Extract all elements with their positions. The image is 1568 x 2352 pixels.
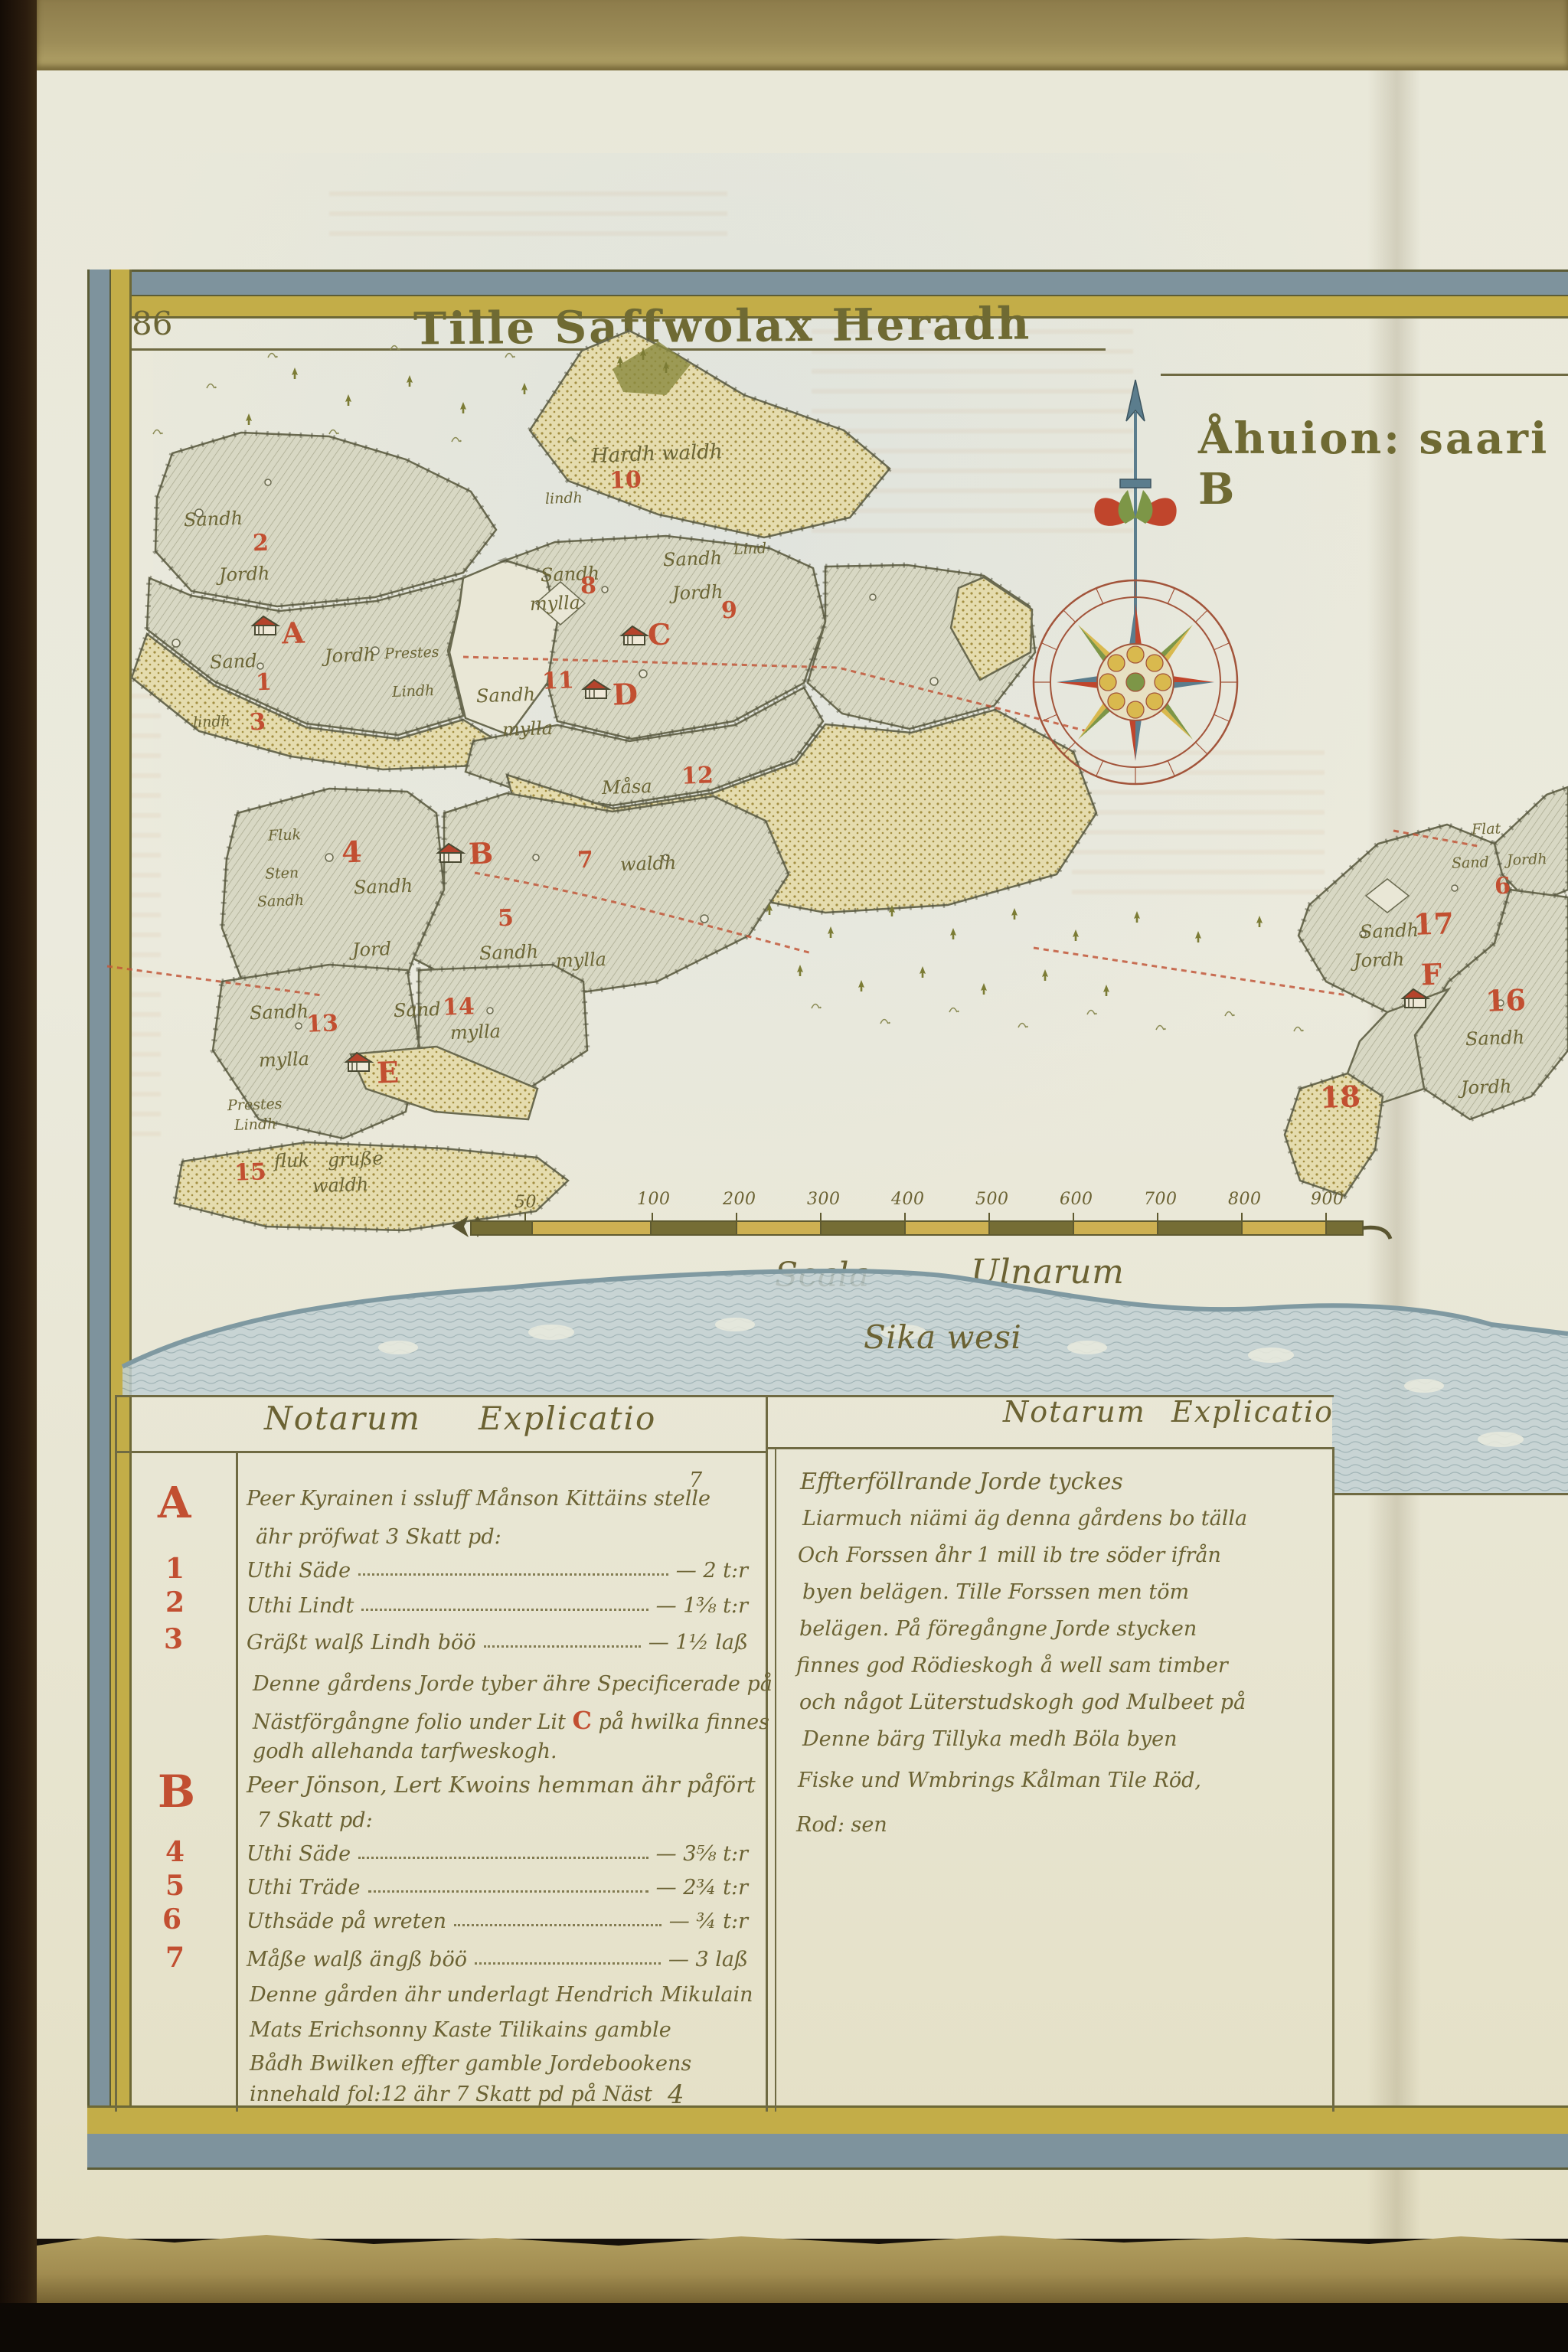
row-value: — 2¾ bbox=[656, 1876, 717, 1900]
book-gutter-shadow bbox=[0, 0, 37, 2352]
row-number: 5 bbox=[165, 1870, 185, 1902]
table-top-rule bbox=[115, 1395, 1334, 1397]
section-b-note-1: Denne gården ähr underlagt Hendrich Miku… bbox=[250, 1983, 753, 2007]
dotted-leader bbox=[358, 1573, 668, 1576]
parcel-label: Jord bbox=[352, 938, 392, 961]
row-number: 3 bbox=[164, 1623, 183, 1655]
map-frame-top-blue bbox=[87, 269, 1568, 296]
table-left-border bbox=[115, 1395, 117, 2112]
scale-tick-label: 100 bbox=[637, 1190, 671, 1209]
parcel-letter: E bbox=[376, 1055, 400, 1090]
map-canvas: .par{stroke:#6a6a50;stroke-width:2.5;} .… bbox=[77, 322, 1568, 1263]
right-col-line: Denne bärg Tillyka medh Böla byen bbox=[802, 1727, 1177, 1751]
parcel-label: Sandh bbox=[257, 892, 305, 910]
section-b-note-3: Bådh Bwilken effter gamble Jordebookens bbox=[250, 2052, 691, 2076]
table-row: Uthi Träde — 2¾ t:r bbox=[247, 1876, 748, 1900]
compass-rose bbox=[1018, 366, 1256, 795]
section-a-line-2: ähr pröfwat 3 Skatt pd: bbox=[256, 1525, 501, 1549]
table-row: Uthi Säde — 2 t:r bbox=[247, 1559, 748, 1583]
parcel-label: waldh bbox=[312, 1174, 369, 1197]
parcel-label: Sandh bbox=[1360, 920, 1419, 943]
row-unit: t:r bbox=[723, 1909, 748, 1933]
row-label: Uthi Säde bbox=[247, 1559, 351, 1583]
row-value: — ¾ bbox=[669, 1909, 717, 1933]
row-label: Uthi Träde bbox=[247, 1876, 361, 1900]
parcel-number: 13 bbox=[305, 1010, 338, 1037]
table-row: Uthi Säde — 3⅝ t:r bbox=[247, 1842, 748, 1866]
row-number: 7 bbox=[165, 1942, 185, 1974]
parcel-label: lindh bbox=[193, 713, 231, 731]
section-b-line-1: Peer Jönson, Lert Kwoins hemman ähr påfö… bbox=[247, 1772, 756, 1798]
parcel-label: Sandh bbox=[479, 941, 539, 965]
right-col-line: belägen. På föregångne Jorde stycken bbox=[799, 1617, 1197, 1641]
table-row: Måße walß ängß böö — 3 laß bbox=[247, 1948, 748, 1971]
section-a-note-1: Denne gårdens Jorde tyber ähre Specifice… bbox=[253, 1672, 773, 1696]
right-col-line: Fiske und Wmbrings Kålman Tile Röd, bbox=[798, 1769, 1201, 1792]
scale-tick-label: 600 bbox=[1060, 1190, 1093, 1209]
parcel-number: 9 bbox=[720, 597, 737, 625]
scale-tick-label: 500 bbox=[975, 1190, 1009, 1209]
row-unit: laß bbox=[715, 1948, 748, 1971]
right-col-line: finnes god Rödieskogh å well sam timber bbox=[796, 1654, 1228, 1677]
table-left-header-rule bbox=[115, 1451, 767, 1453]
parcel-label: Hardh waldh bbox=[591, 440, 724, 468]
parcel-label: waldh bbox=[620, 852, 677, 876]
right-col-line: Och Forssen åhr 1 mill ib tre söder ifrå… bbox=[798, 1543, 1221, 1567]
row-unit: t:r bbox=[723, 1559, 748, 1583]
right-col-line: Effterföllrande Jorde tyckes bbox=[800, 1468, 1123, 1495]
parcel-number: 17 bbox=[1413, 906, 1454, 942]
row-label: Måße walß ängß böö bbox=[247, 1948, 467, 1971]
row-number: 4 bbox=[165, 1836, 185, 1868]
section-a-line-1: Peer Kyrainen i ssluff Månson Kittäins s… bbox=[247, 1487, 710, 1511]
row-unit: t:r bbox=[723, 1842, 748, 1866]
map-frame-bottom-blue bbox=[87, 2134, 1568, 2170]
ink-bleedthrough bbox=[329, 191, 727, 245]
section-b-line-2: 7 Skatt pd: bbox=[257, 1808, 373, 1832]
parcel-number: 12 bbox=[681, 762, 714, 789]
table-header-right-notarum: Notarum bbox=[1003, 1395, 1146, 1429]
parcel-label: Sandh bbox=[476, 684, 536, 707]
row-label: Uthi Lindt bbox=[247, 1594, 354, 1618]
row-unit: laß bbox=[715, 1631, 748, 1655]
dotted-leader bbox=[484, 1645, 641, 1648]
parcel-label: mylla bbox=[450, 1021, 501, 1044]
parcel-label: Sandh bbox=[184, 508, 243, 531]
section-a-note-3: godh allehanda tarfweskogh. bbox=[253, 1739, 557, 1763]
scale-tick-label: 400 bbox=[891, 1190, 925, 1209]
dotted-leader bbox=[361, 1609, 648, 1611]
parcel-label: Jordh bbox=[1354, 949, 1405, 972]
section-a-note-2: Nästförgångne folio under Lit C på hwilk… bbox=[253, 1706, 769, 1735]
table-surface-bottom bbox=[0, 2303, 1568, 2352]
table-row: Uthi Lindt — 1⅜ t:r bbox=[247, 1594, 748, 1618]
lake-sika-wesi bbox=[77, 1240, 1568, 1504]
parcel-number: 11 bbox=[541, 667, 574, 694]
table-header-left-explicatio: Explicatio bbox=[479, 1400, 656, 1437]
parcel-label: Sandh bbox=[1465, 1027, 1525, 1050]
table-header-right-explicatio: Explicatio bbox=[1171, 1395, 1334, 1429]
table-right-border bbox=[1332, 1447, 1334, 2112]
row-value: — 1½ bbox=[648, 1631, 709, 1655]
table-right-header-rule bbox=[767, 1447, 1334, 1449]
parcel-label: fluk bbox=[274, 1149, 310, 1172]
table-center-divider bbox=[766, 1395, 768, 2112]
parcel-number: 7 bbox=[577, 847, 593, 874]
parcel-label: lindh bbox=[545, 489, 583, 508]
table-center-divider-2 bbox=[775, 1447, 776, 2112]
row-value: — 1⅜ bbox=[656, 1594, 717, 1618]
dotted-leader bbox=[454, 1924, 661, 1926]
parcel-10-forest bbox=[530, 331, 890, 537]
parcel-letter: B bbox=[468, 835, 494, 871]
scale-tick-label: 700 bbox=[1144, 1190, 1178, 1209]
scale-tick-label: 50 bbox=[514, 1193, 537, 1212]
atlas-page: 86 Tille Saffwolax Heradh Åhuion: saari … bbox=[0, 0, 1568, 2352]
parcel-label: mylla bbox=[530, 592, 581, 615]
row-label: Uthi Säde bbox=[247, 1842, 351, 1866]
table-row: Uthsäde på wreten — ¾ t:r bbox=[247, 1909, 748, 1933]
map-frame-bottom-yellow bbox=[87, 2105, 1568, 2134]
parcel-label: Sand bbox=[394, 998, 442, 1021]
row-label: Uthsäde på wreten bbox=[247, 1909, 446, 1933]
parcel-label: Sand bbox=[1452, 854, 1489, 872]
parcel-number: 14 bbox=[442, 993, 475, 1021]
parcel-number: 18 bbox=[1319, 1079, 1361, 1115]
right-col-line: Liarmuch niämi äg denna gårdens bo tälla bbox=[802, 1507, 1247, 1530]
parcel-number: 8 bbox=[580, 573, 596, 600]
parcel-label: mylla bbox=[556, 949, 607, 972]
parcel-label: Lindh bbox=[234, 1116, 277, 1134]
note-text: Nästförgångne folio under Lit bbox=[253, 1710, 566, 1734]
section-letter-a: A bbox=[158, 1478, 191, 1528]
dotted-leader bbox=[475, 1962, 661, 1965]
parcel-number: 5 bbox=[497, 905, 514, 933]
section-letter-b: B bbox=[158, 1766, 195, 1818]
table-header-left-notarum: Notarum bbox=[264, 1400, 421, 1437]
parcel-letter: D bbox=[612, 676, 639, 711]
lake-label: Sika wesi bbox=[864, 1318, 1021, 1356]
right-col-line: byen belägen. Tille Forssen men töm bbox=[802, 1580, 1189, 1604]
parcel-label: Prestes bbox=[384, 644, 439, 662]
parcel-label: Jordh bbox=[1461, 1076, 1512, 1099]
dotted-leader bbox=[368, 1890, 648, 1893]
parcel-label: Sand bbox=[210, 650, 258, 673]
row-value: — 2 bbox=[676, 1559, 717, 1583]
table-row: Gräßt walß Lindh böö — 1½ laß bbox=[247, 1631, 748, 1655]
row-unit: t:r bbox=[723, 1876, 748, 1900]
row-label: Gräßt walß Lindh böö bbox=[247, 1631, 476, 1655]
parcel-number: 6 bbox=[1494, 873, 1511, 900]
parcel-label: Jordh bbox=[1507, 851, 1547, 869]
parcel-label: Måsa bbox=[602, 776, 652, 799]
parcel-label: Lind bbox=[733, 540, 767, 557]
row-value: — 3 bbox=[668, 1948, 709, 1971]
parcel-letter: A bbox=[281, 615, 305, 650]
parcel-letter: F bbox=[1420, 957, 1442, 992]
parcel-label: Jordh bbox=[219, 563, 270, 586]
table-margin-rule-left bbox=[236, 1451, 238, 2112]
parcel-number: 10 bbox=[609, 466, 642, 494]
section-b-note-2: Mats Erichsonny Kaste Tilikains gamble bbox=[250, 2018, 671, 2042]
parcel-letter: C bbox=[647, 616, 671, 652]
parcel-label: Sandh bbox=[250, 1001, 309, 1024]
scale-tick-label: 200 bbox=[723, 1190, 756, 1209]
table-far-right-rule bbox=[1332, 1493, 1568, 1495]
page-deckle-edge bbox=[37, 2232, 1568, 2308]
parcel-label: Fluk bbox=[268, 826, 302, 844]
row-number: 2 bbox=[165, 1586, 185, 1619]
scale-tick-label: 900 bbox=[1311, 1190, 1344, 1209]
parcel-number: 16 bbox=[1485, 982, 1526, 1018]
parcel-label: Jordh bbox=[672, 581, 724, 604]
parcel-9 bbox=[808, 565, 1035, 729]
parcel-label: Sten bbox=[265, 864, 299, 883]
parcel-label: gruße bbox=[328, 1148, 384, 1171]
scale-tick-label: 300 bbox=[807, 1190, 841, 1209]
parcel-label: mylla bbox=[502, 717, 554, 740]
dotted-leader bbox=[358, 1857, 648, 1859]
page-stack-edge-top bbox=[37, 0, 1568, 70]
parcel-number: 4 bbox=[341, 835, 362, 870]
row-number: 6 bbox=[162, 1903, 181, 1935]
parcel-number: 15 bbox=[234, 1158, 266, 1186]
parcel-number: 1 bbox=[255, 669, 272, 697]
right-col-line: Rod: sen bbox=[796, 1813, 887, 1837]
margin-mark-bottom: 4 bbox=[668, 2079, 684, 2110]
note-text: på hwilka finnes bbox=[599, 1710, 769, 1734]
parcel-label: Prestes bbox=[227, 1096, 283, 1114]
parcel-number: 2 bbox=[252, 530, 269, 557]
section-b-note-4: innehald fol:12 ähr 7 Skatt pd på Näst bbox=[250, 2082, 652, 2106]
parcel-label: Lindh bbox=[392, 682, 435, 701]
parcel-label: Flat bbox=[1472, 820, 1501, 838]
scale-tick-label: 800 bbox=[1228, 1190, 1262, 1209]
parcel-label: Sandh bbox=[663, 547, 723, 571]
row-unit: t:r bbox=[723, 1594, 748, 1618]
parcel-label: Jordh bbox=[325, 644, 376, 667]
right-col-line: och något Lüterstudskogh god Mulbeet på bbox=[799, 1690, 1246, 1714]
parcel-label: Sandh bbox=[354, 875, 413, 899]
note-letter-c: C bbox=[572, 1706, 591, 1735]
parcel-number: 3 bbox=[249, 709, 266, 737]
row-value: — 3⅝ bbox=[656, 1842, 717, 1866]
parcel-label: mylla bbox=[259, 1048, 310, 1071]
parcel-prestes-lindh-north bbox=[449, 560, 557, 735]
row-number: 1 bbox=[165, 1553, 185, 1585]
